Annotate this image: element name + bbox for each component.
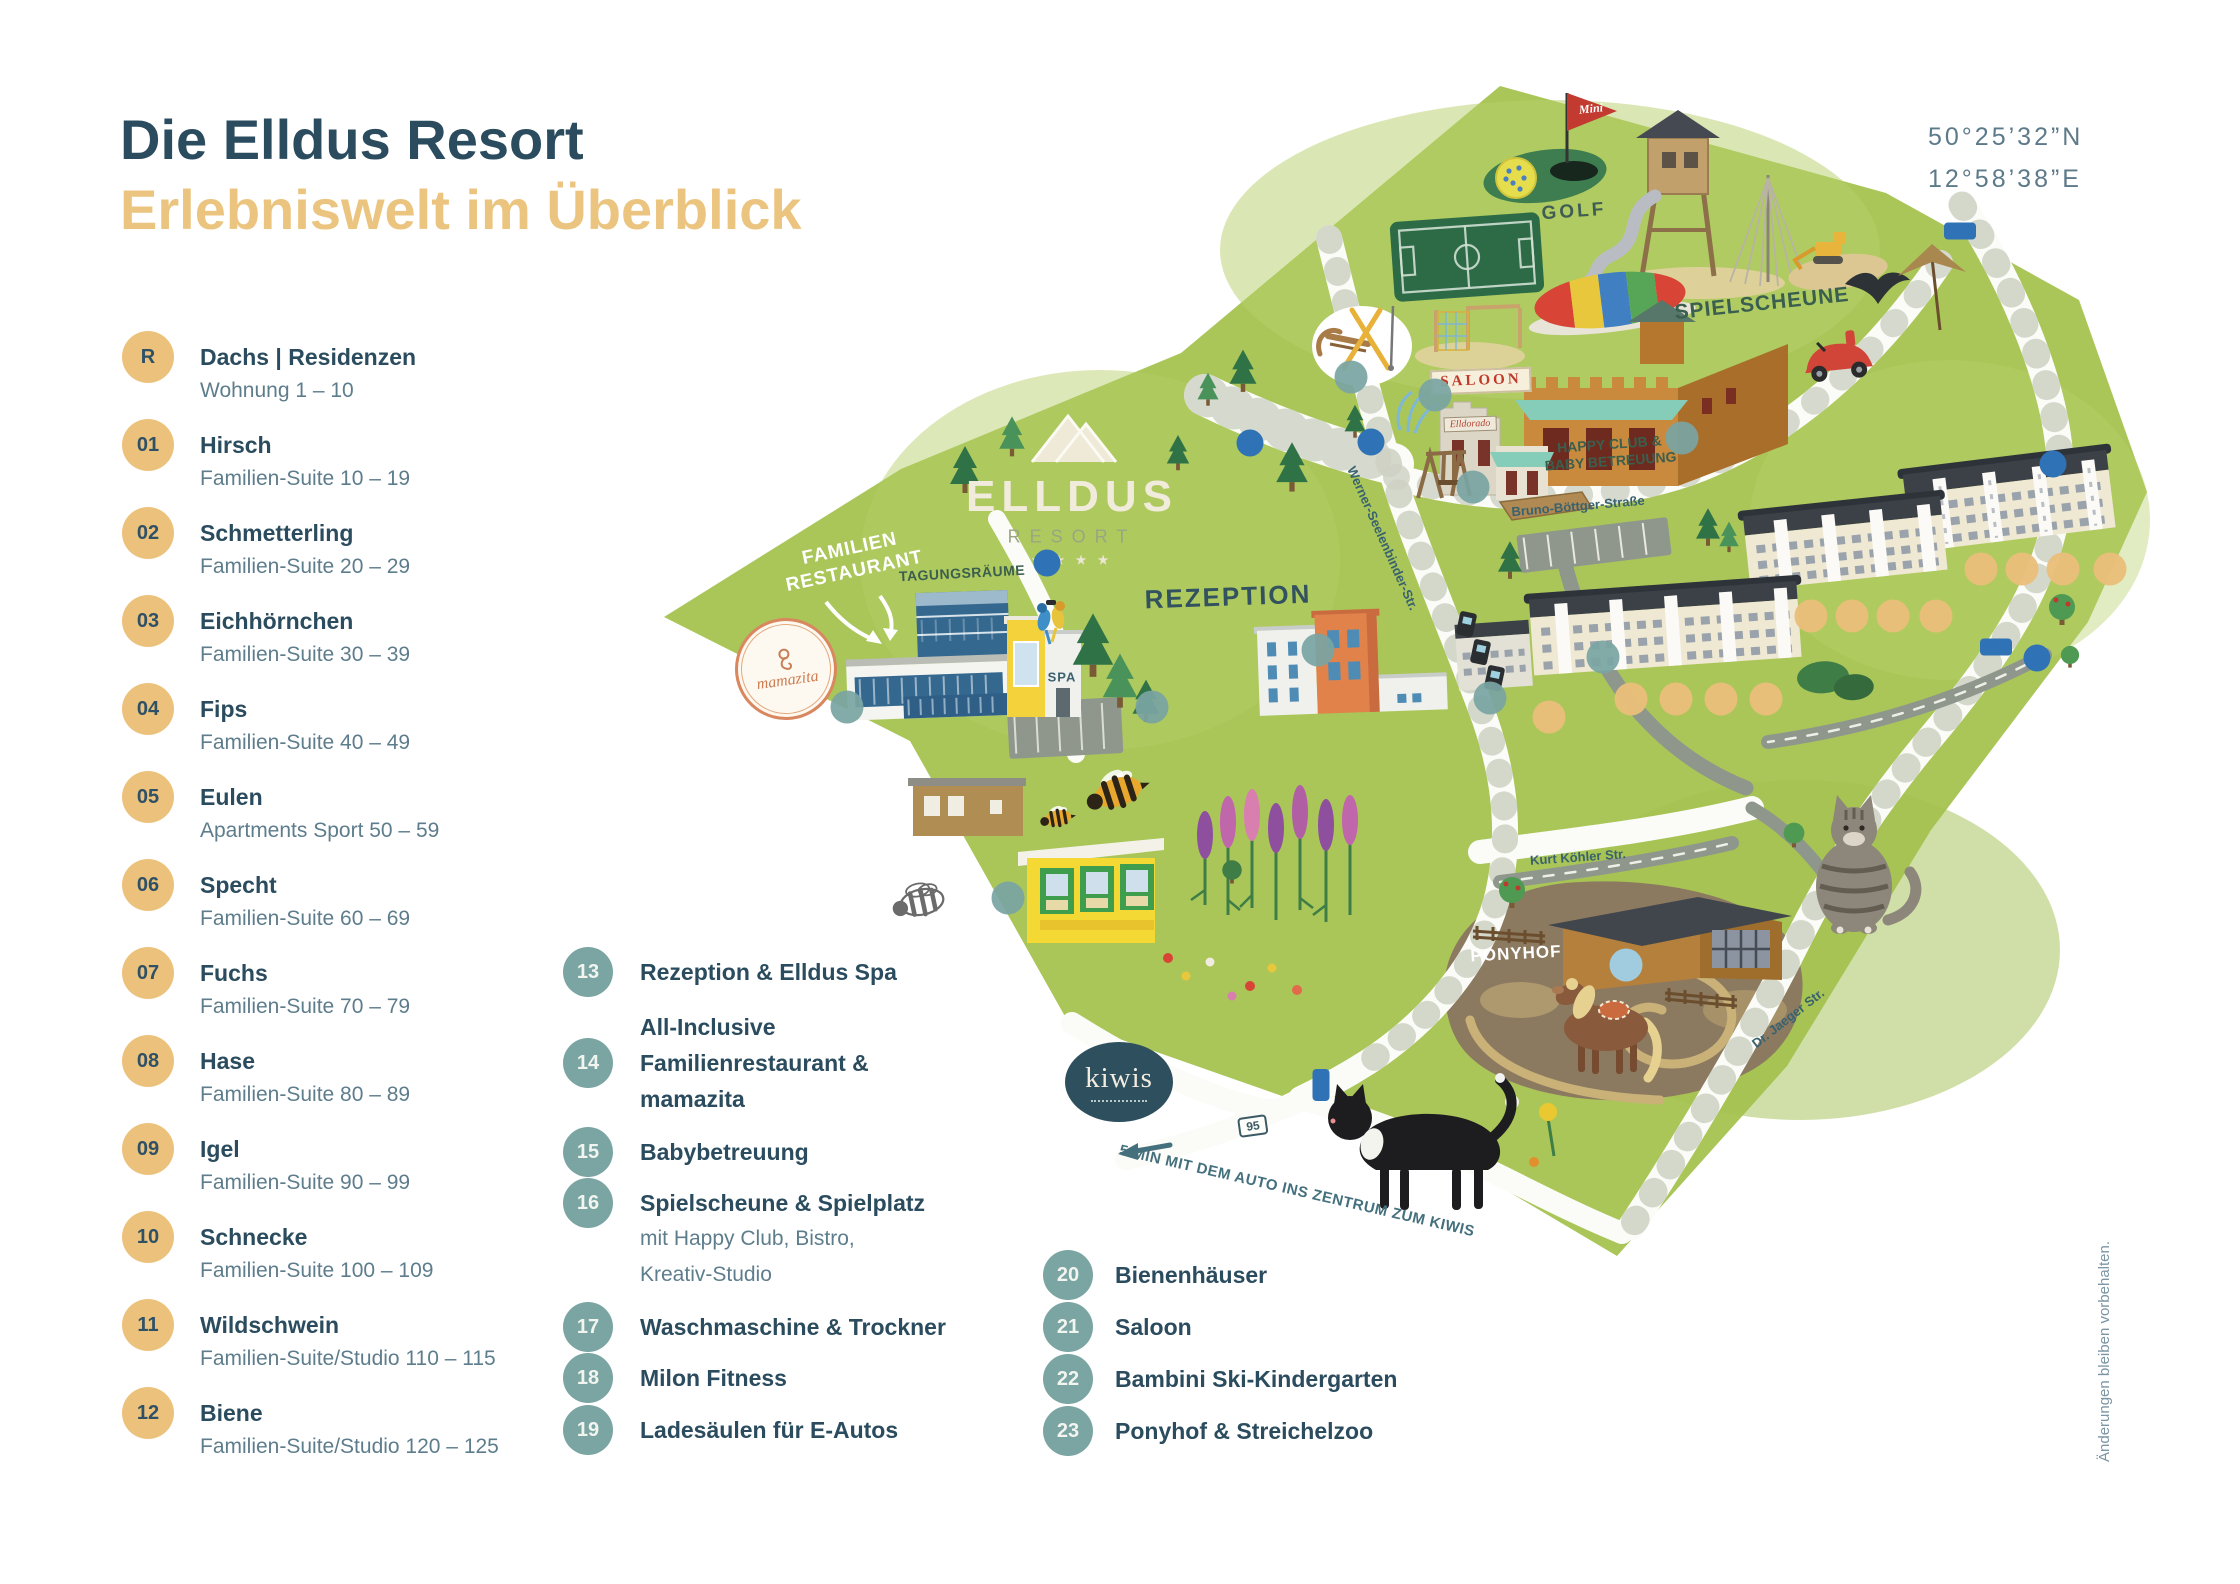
legend-item-number: 10 (122, 1211, 174, 1263)
legend-item-name: Bienenhäuser (1115, 1258, 1267, 1292)
legend-item: 13 Rezeption & Elldus Spa (563, 947, 1043, 997)
map-marker[interactable] (1136, 691, 1169, 724)
footnote: Änderungen bleiben vorbehalten. (2096, 1241, 2113, 1462)
legend-item-number: 08 (122, 1035, 174, 1087)
one-way-arrow-icon (1980, 639, 2012, 656)
legend-item-number: 06 (122, 859, 174, 911)
parking-icon (2040, 451, 2067, 478)
legend-item-detail: Familien-Suite 70 – 79 (200, 990, 410, 1024)
legend-item-name: Schmetterling (200, 516, 410, 550)
legend-item-number: 21 (1043, 1302, 1093, 1352)
legend-item: 02 Schmetterling Familien-Suite 20 – 29 (122, 516, 552, 584)
longitude: 12°58’38”E (1928, 158, 2083, 200)
legend-item-name: Ponyhof & Streichelzoo (1115, 1414, 1373, 1448)
legend-item: 03 Eichhörnchen Familien-Suite 30 – 39 (122, 604, 552, 672)
legend-item-name: Dachs | Residenzen (200, 340, 416, 374)
legend-item-detail: Familien-Suite 90 – 99 (200, 1166, 410, 1200)
route-95-badge: 95 (1237, 1114, 1269, 1138)
parking-icon (2024, 645, 2051, 672)
map-marker[interactable] (1610, 949, 1643, 982)
legend-item: 16 Spielscheune & Spielplatz mit Happy C… (563, 1185, 1043, 1293)
map-marker[interactable] (1615, 683, 1648, 716)
elldus-wordmark: ELLDUS (966, 472, 1178, 522)
legend-item-detail: Familien-Suite 60 – 69 (200, 902, 410, 936)
label-rezeption: REZEPTION (1144, 579, 1312, 616)
legend-item-name: Hirsch (200, 428, 410, 462)
legend-item-number: 15 (563, 1127, 613, 1177)
legend-item-detail: Familien-Suite 10 – 19 (200, 462, 410, 496)
legend-item: 06 Specht Familien-Suite 60 – 69 (122, 868, 552, 936)
map-marker[interactable] (1587, 641, 1620, 674)
legend-item-name: Fuchs (200, 956, 410, 990)
legend-item: 11 Wildschwein Familien-Suite/Studio 110… (122, 1308, 552, 1376)
legend-item: 12 Biene Familien-Suite/Studio 120 – 125 (122, 1396, 552, 1464)
legend-item: 23 Ponyhof & Streichelzoo (1043, 1406, 1483, 1456)
legend-item: 09 Igel Familien-Suite 90 – 99 (122, 1132, 552, 1200)
legend-item-number: 23 (1043, 1406, 1093, 1456)
legend-item: 10 Schnecke Familien-Suite 100 – 109 (122, 1220, 552, 1288)
parking-icon (1358, 429, 1385, 456)
map-marker[interactable] (1474, 682, 1507, 715)
map-marker[interactable] (1965, 553, 1998, 586)
map-coordinates: 50°25’32”N 12°58’38”E (1928, 116, 2083, 200)
legend-item-detail: Familien-Suite/Studio 110 – 115 (200, 1342, 496, 1376)
map-marker[interactable] (1836, 600, 1869, 633)
legend-item-number: 05 (122, 771, 174, 823)
legend-item-number: R (122, 331, 174, 383)
spa-buildings (1004, 616, 1083, 717)
parking-icon (1237, 430, 1264, 457)
legend-item-name: Eulen (200, 780, 439, 814)
map-marker[interactable] (1533, 701, 1566, 734)
legend-item-number: 19 (563, 1405, 613, 1455)
map-marker[interactable] (1666, 422, 1699, 455)
map-marker[interactable] (1920, 600, 1953, 633)
legend-item-detail: Familien-Suite 80 – 89 (200, 1078, 410, 1112)
label-mini-flag: Mini (1578, 100, 1603, 117)
legend-item: 22 Bambini Ski-Kindergarten (1043, 1354, 1483, 1404)
legend-item-number: 09 (122, 1123, 174, 1175)
legend-item-name: Fips (200, 692, 410, 726)
legend-item-name: Bambini Ski-Kindergarten (1115, 1362, 1397, 1396)
legend-item-detail: Wohnung 1 – 10 (200, 374, 416, 408)
label-spa: SPA (1048, 670, 1077, 685)
legend-item-name: Spielscheune & Spielplatz (640, 1185, 925, 1221)
legend-points: 20 Bienenhäuser 21 Saloon 22 Bambini Ski… (1043, 1250, 1483, 1458)
elldorado-sign: Elldorado (1443, 416, 1496, 433)
legend-item-detail: Familien-Suite 20 – 29 (200, 550, 410, 584)
legend-item-number: 13 (563, 947, 613, 997)
map-marker[interactable] (1419, 379, 1452, 412)
legend-item: 08 Hase Familien-Suite 80 – 89 (122, 1044, 552, 1112)
soccer-field (1389, 212, 1544, 302)
legend-item-number: 01 (122, 419, 174, 471)
legend-item-number: 07 (122, 947, 174, 999)
legend-item-name: Specht (200, 868, 410, 902)
legend-item: 18 Milon Fitness (563, 1353, 1043, 1403)
kiwis-tagline-line (1091, 1100, 1147, 1102)
legend-rooms: R Dachs | Residenzen Wohnung 1 – 10 01 H… (122, 340, 552, 1484)
legend-item: 17 Waschmaschine & Trockner (563, 1302, 1043, 1352)
legend-item-detail: Familien-Suite 30 – 39 (200, 638, 410, 672)
legend-item-name: All-InclusiveFamilienrestaurant &mamazit… (640, 1009, 869, 1117)
map-marker[interactable] (1302, 634, 1335, 667)
legend-item: 04 Fips Familien-Suite 40 – 49 (122, 692, 552, 760)
legend-item-detail: Apartments Sport 50 – 59 (200, 814, 439, 848)
legend-item-number: 22 (1043, 1354, 1093, 1404)
resort-map-page: Die Elldus Resort Erlebniswelt im Überbl… (0, 0, 2240, 1584)
map-marker[interactable] (1335, 361, 1368, 394)
legend-item-name: Hase (200, 1044, 410, 1078)
latitude: 50°25’32”N (1928, 116, 2083, 158)
legend-item: R Dachs | Residenzen Wohnung 1 – 10 (122, 340, 552, 408)
legend-item-name: Eichhörnchen (200, 604, 410, 638)
legend-item-number: 11 (122, 1299, 174, 1351)
map-marker[interactable] (992, 882, 1025, 915)
map-marker[interactable] (831, 691, 864, 724)
legend-item-detail: Familien-Suite/Studio 120 – 125 (200, 1430, 499, 1464)
legend-item-detail: mit Happy Club, Bistro,Kreativ-Studio (640, 1221, 925, 1293)
legend-item-name: Schnecke (200, 1220, 433, 1254)
legend-item: 20 Bienenhäuser (1043, 1250, 1483, 1300)
legend-item-name: Babybetreuung (640, 1134, 809, 1170)
legend-facilities: 13 Rezeption & Elldus Spa 14 All-Inclusi… (563, 947, 1043, 1467)
elldus-resort-sub: RESORT (1008, 527, 1137, 548)
map-marker[interactable] (1660, 683, 1693, 716)
legend-item-number: 18 (563, 1353, 613, 1403)
one-way-arrow-icon (1313, 1069, 1330, 1101)
legend-item-name: Milon Fitness (640, 1360, 787, 1396)
parking-icon (1034, 550, 1061, 577)
legend-item-name: Wildschwein (200, 1308, 496, 1342)
legend-item: 15 Babybetreuung (563, 1127, 1043, 1177)
map-marker[interactable] (2006, 553, 2039, 586)
legend-item: 01 Hirsch Familien-Suite 10 – 19 (122, 428, 552, 496)
map-marker[interactable] (1705, 683, 1738, 716)
legend-item-number: 17 (563, 1302, 613, 1352)
legend-item-number: 16 (563, 1178, 613, 1228)
legend-item-name: Rezeption & Elldus Spa (640, 954, 897, 990)
legend-item-name: Biene (200, 1396, 499, 1430)
legend-item-number: 12 (122, 1387, 174, 1439)
legend-item-number: 20 (1043, 1250, 1093, 1300)
map-marker[interactable] (1795, 600, 1828, 633)
legend-item-name: Igel (200, 1132, 410, 1166)
map-marker[interactable] (1750, 683, 1783, 716)
legend-item-detail: Familien-Suite 100 – 109 (200, 1254, 433, 1288)
legend-item: 07 Fuchs Familien-Suite 70 – 79 (122, 956, 552, 1024)
map-marker[interactable] (1877, 600, 1910, 633)
label-golf: GOLF (1541, 199, 1607, 225)
map-marker[interactable] (2094, 553, 2127, 586)
legend-item: 19 Ladesäulen für E-Autos (563, 1405, 1043, 1455)
legend-item: 21 Saloon (1043, 1302, 1483, 1352)
bee-sketch (889, 879, 946, 920)
legend-item-name: Waschmaschine & Trockner (640, 1309, 946, 1345)
map-marker[interactable] (1457, 471, 1490, 504)
legend-item: 14 All-InclusiveFamilienrestaurant &mama… (563, 1009, 1043, 1117)
legend-item-number: 04 (122, 683, 174, 735)
legend-item-number: 14 (563, 1038, 613, 1088)
legend-item-number: 02 (122, 507, 174, 559)
map-marker[interactable] (2047, 553, 2080, 586)
kiwis-logo: kiwis (1065, 1042, 1173, 1122)
legend-item-name: Saloon (1115, 1310, 1192, 1344)
legend-item: 05 Eulen Apartments Sport 50 – 59 (122, 780, 552, 848)
legend-item-name: Ladesäulen für E-Autos (640, 1412, 898, 1448)
legend-item-detail: Familien-Suite 40 – 49 (200, 726, 410, 760)
one-way-arrow-icon (1944, 223, 1976, 240)
legend-item-number: 03 (122, 595, 174, 647)
